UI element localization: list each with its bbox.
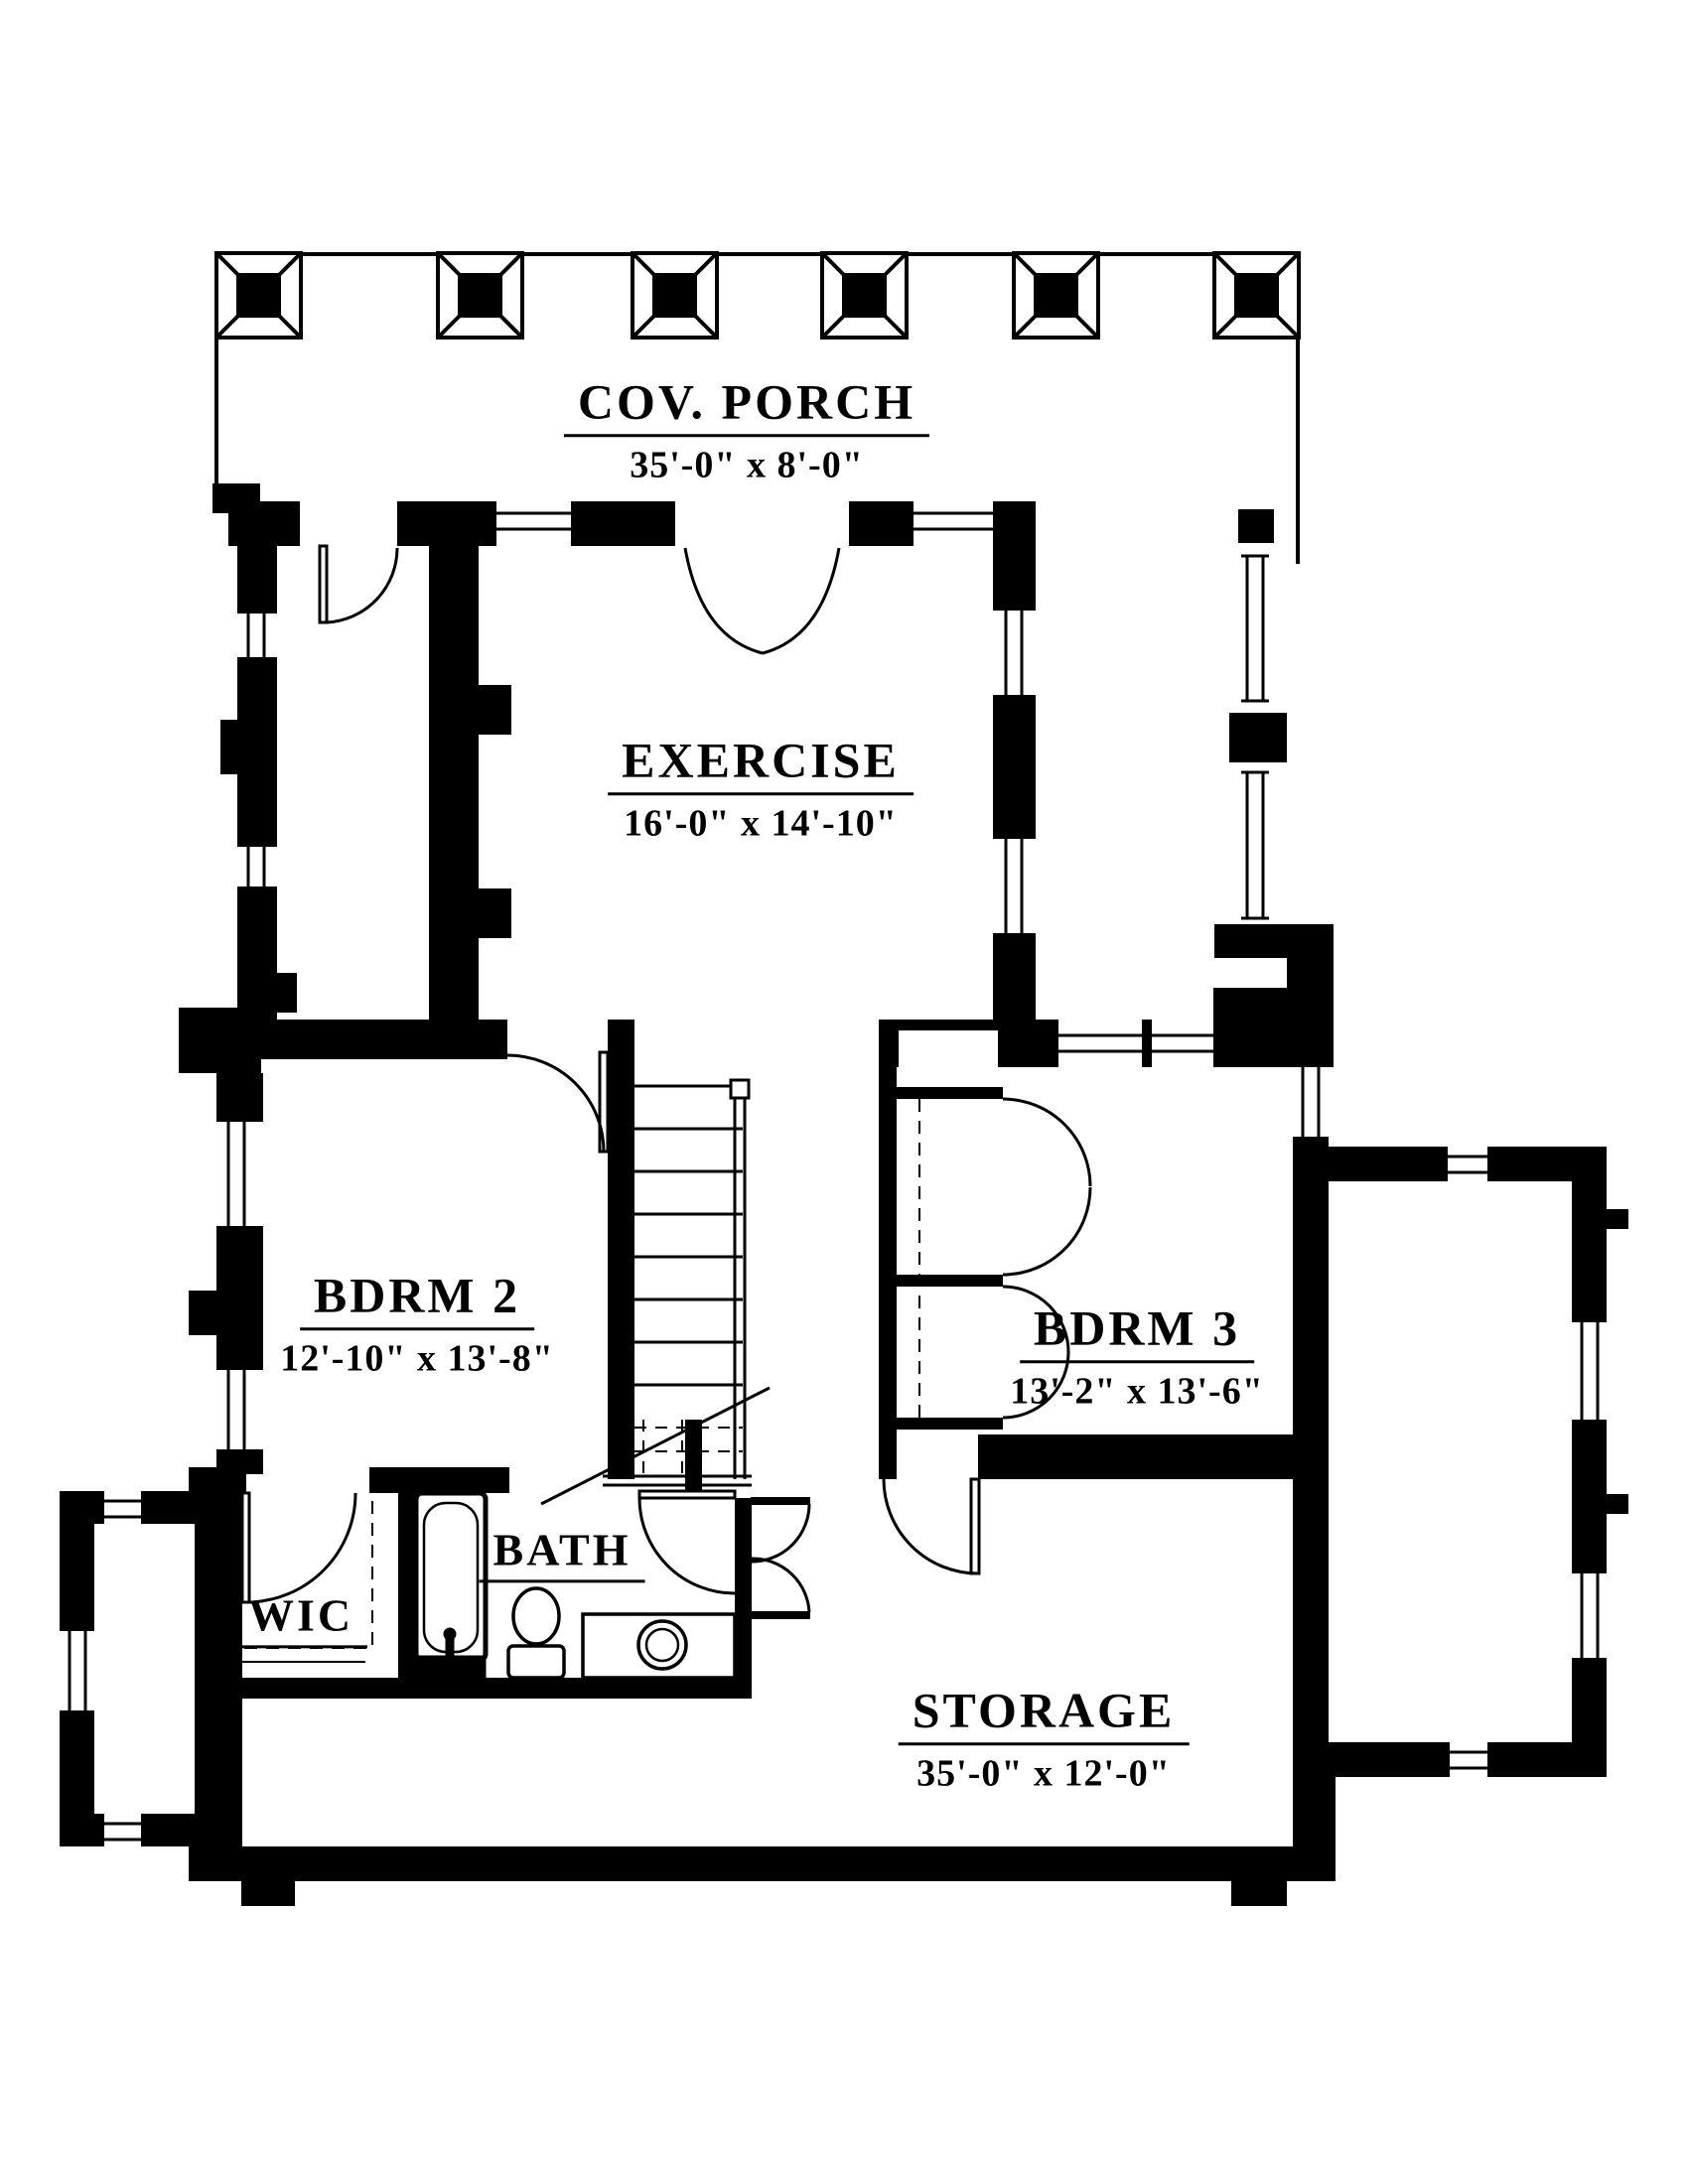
- floor-plan-page: COV. PORCH 35'-0" x 8'-0" EXERCISE 16'-0…: [0, 0, 1688, 2184]
- room-label-bath: BATH: [480, 1526, 645, 1582]
- room-dims: 13'-2" x 13'-6": [1010, 1363, 1264, 1413]
- room-title: BDRM 3: [1020, 1301, 1254, 1363]
- porch-column-icon: [633, 253, 717, 338]
- room-title: BDRM 2: [300, 1269, 534, 1330]
- window-icon: [1241, 556, 1269, 701]
- window-icon: [70, 1631, 85, 1710]
- porch-column-icon: [438, 253, 522, 338]
- window-icon: [228, 1370, 244, 1449]
- porch-column-icon: [1214, 253, 1299, 338]
- window-icon: [248, 614, 264, 657]
- window-icon: [1582, 1322, 1598, 1420]
- stairs: [541, 1080, 770, 1504]
- porch-column-icon: [216, 253, 301, 338]
- window-icon: [248, 847, 264, 887]
- window-icon: [914, 513, 993, 529]
- door-bdrm3: [884, 1479, 979, 1573]
- stair-newel: [731, 1080, 749, 1098]
- window-icon: [1448, 1752, 1487, 1768]
- room-title: STORAGE: [899, 1684, 1190, 1745]
- window-icon: [1058, 1035, 1142, 1051]
- tub-icon: [416, 1493, 486, 1678]
- room-label-wic: WIC: [234, 1591, 367, 1648]
- floor-plan-drawing: [0, 0, 1688, 2184]
- room-title: EXERCISE: [608, 734, 914, 795]
- door-bdrm2: [507, 1052, 608, 1152]
- window-icon: [1448, 1157, 1487, 1172]
- room-title: BATH: [480, 1526, 645, 1582]
- closet-notch: [899, 1030, 998, 1067]
- window-icon: [1582, 1573, 1598, 1658]
- room-dims: 35'-0" x 12'-0": [899, 1745, 1190, 1795]
- bath-fixtures: [416, 1493, 735, 1678]
- room-title: WIC: [234, 1591, 367, 1648]
- room-label-storage: STORAGE 35'-0" x 12'-0": [899, 1684, 1190, 1795]
- room-label-exercise: EXERCISE 16'-0" x 14'-10": [608, 734, 914, 845]
- room-label-bdrm3: BDRM 3 13'-2" x 13'-6": [1010, 1301, 1264, 1413]
- room-title: COV. PORCH: [564, 375, 929, 437]
- doors: [242, 546, 1090, 1618]
- window-icon: [496, 513, 571, 529]
- window-icon: [104, 1501, 141, 1517]
- door-bath: [639, 1491, 735, 1593]
- porch-column-icon: [822, 253, 907, 338]
- window-icon: [104, 1824, 141, 1840]
- window-icon: [1006, 839, 1022, 933]
- room-dims: 35'-0" x 8'-0": [564, 437, 929, 486]
- door-french-exercise: [685, 548, 839, 653]
- window-icon: [1303, 1057, 1319, 1137]
- porch-column-icon: [1014, 253, 1098, 338]
- window-icon: [1006, 611, 1022, 695]
- window-icon: [1241, 772, 1269, 918]
- toilet-icon: [508, 1588, 564, 1678]
- walls: [60, 483, 1628, 1906]
- room-label-bdrm2: BDRM 2 12'-10" x 13'-8": [280, 1269, 554, 1380]
- window-icon: [228, 1122, 244, 1226]
- porch-columns: [216, 253, 1299, 338]
- room-dims: 16'-0" x 14'-10": [608, 795, 914, 845]
- door-wic: [242, 1493, 355, 1602]
- door-hall: [320, 546, 397, 622]
- stair-rail: [735, 1086, 745, 1479]
- vanity-sink-icon: [583, 1614, 735, 1678]
- room-dims: 12'-10" x 13'-8": [280, 1330, 554, 1380]
- door-understair: [752, 1498, 809, 1618]
- room-label-cov-porch: COV. PORCH 35'-0" x 8'-0": [564, 375, 929, 486]
